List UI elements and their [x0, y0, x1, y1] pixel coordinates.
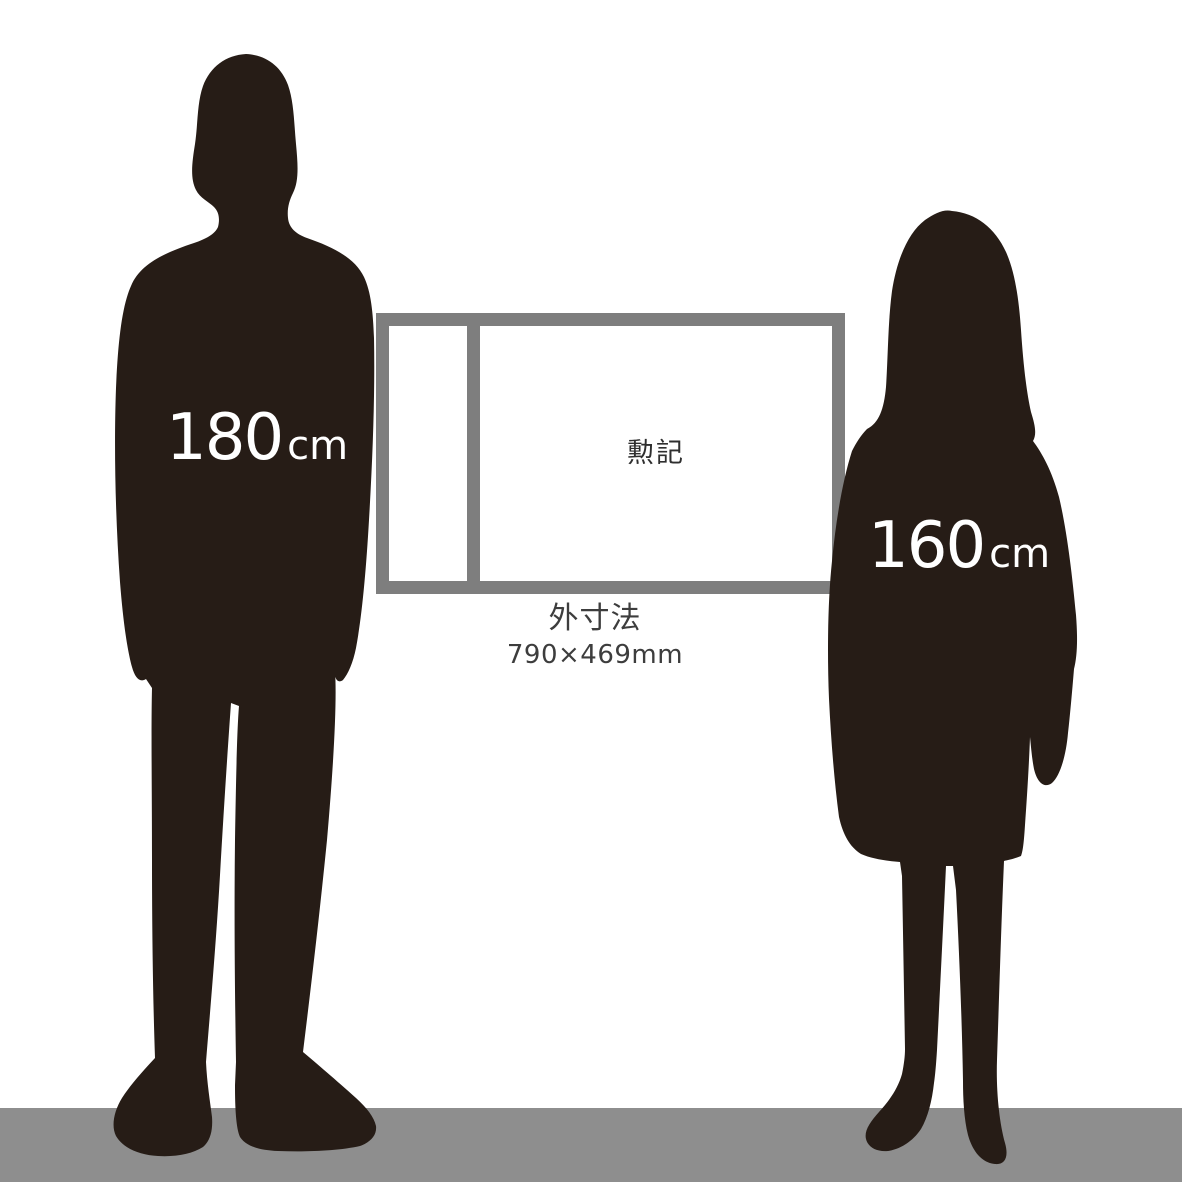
dimension-caption: 外寸法 790×469mm	[356, 602, 834, 670]
male-height-label: 180 cm	[166, 406, 348, 470]
male-height-unit: cm	[287, 426, 348, 466]
certificate-frame: 勲記	[376, 313, 845, 594]
female-silhouette	[828, 210, 1077, 1164]
size-comparison-diagram: 勲記 外寸法 790×469mm 180 cm 160 cm	[0, 0, 1182, 1182]
frame-left-panel	[389, 326, 467, 581]
male-silhouette	[114, 54, 377, 1156]
dimension-title: 外寸法	[356, 602, 834, 635]
female-height-label: 160 cm	[868, 514, 1050, 578]
certificate-label: 勲記	[627, 440, 685, 467]
female-height-unit: cm	[989, 534, 1050, 574]
male-height-value: 180	[166, 406, 282, 470]
floor	[0, 1108, 1182, 1182]
female-height-value: 160	[868, 514, 984, 578]
dimension-value: 790×469mm	[356, 641, 834, 670]
frame-right-panel: 勲記	[480, 326, 832, 581]
